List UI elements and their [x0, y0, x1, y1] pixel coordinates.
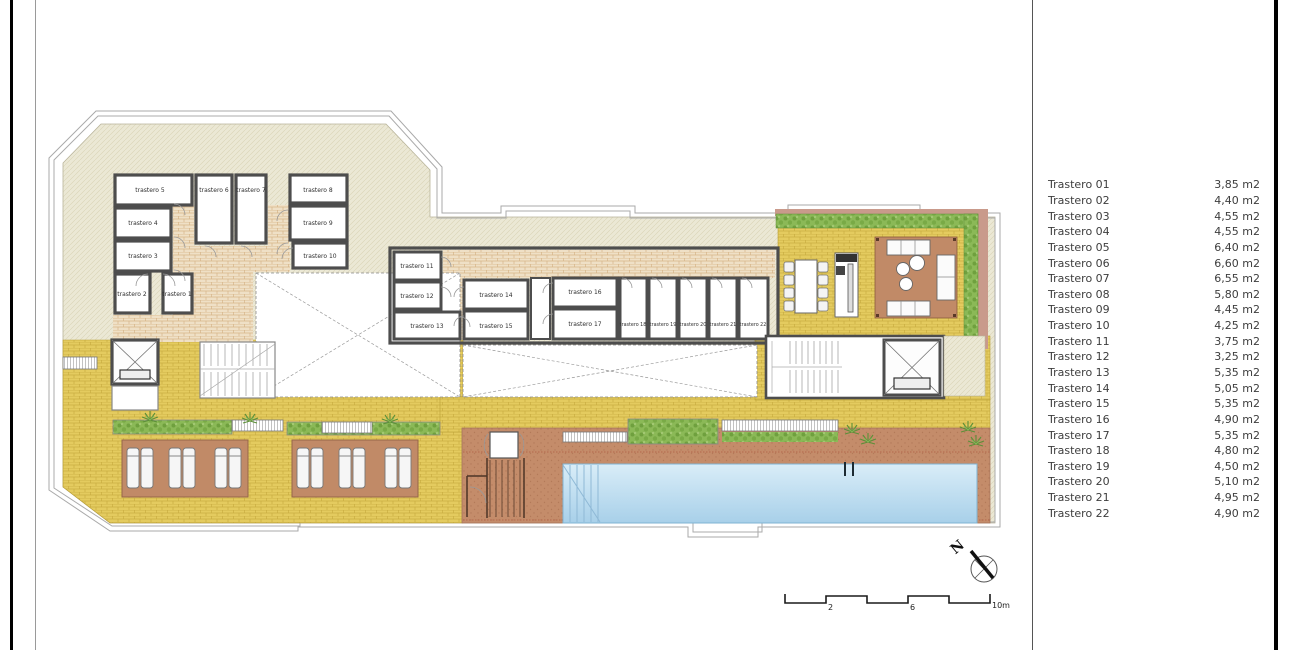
legend-row: Trastero 214,95 m2: [1048, 490, 1260, 506]
legend-room-name: Trastero 02: [1048, 194, 1110, 207]
sheet-border-left-thick: [10, 0, 13, 650]
storeroom-legend: Trastero 013,85 m2 Trastero 024,40 m2 Tr…: [1048, 177, 1260, 521]
room-label: trastero 11: [400, 263, 433, 270]
legend-room-name: Trastero 15: [1048, 397, 1110, 410]
terrace-planter: [113, 420, 232, 434]
legend-row: Trastero 024,40 m2: [1048, 193, 1260, 209]
room-label: trastero 2: [117, 291, 147, 298]
legend-room-name: Trastero 17: [1048, 429, 1110, 442]
legend-row: Trastero 066,60 m2: [1048, 255, 1260, 271]
legend-room-name: Trastero 16: [1048, 413, 1110, 426]
pool-planter: [628, 419, 718, 444]
legend-row: Trastero 113,75 m2: [1048, 333, 1260, 349]
legend-room-name: Trastero 13: [1048, 366, 1110, 379]
room-trastero-20: [679, 278, 707, 339]
north-arrow-icon: N: [948, 537, 997, 582]
elevator-right: [884, 340, 940, 395]
legend-row: Trastero 224,90 m2: [1048, 505, 1260, 521]
legend-row: Trastero 123,25 m2: [1048, 349, 1260, 365]
terrace-bench: [232, 420, 283, 431]
room-label: trastero 10: [303, 253, 336, 260]
legend-row: Trastero 044,55 m2: [1048, 224, 1260, 240]
legend-row: Trastero 184,80 m2: [1048, 443, 1260, 459]
sheet-border-right-thick: [1274, 0, 1278, 650]
room-label: trastero 5: [135, 187, 165, 194]
room-label: trastero 4: [128, 220, 158, 227]
legend-room-name: Trastero 09: [1048, 303, 1110, 316]
scale-tick-label: 6: [910, 603, 915, 612]
legend-room-name: Trastero 04: [1048, 225, 1110, 238]
legend-room-area: 3,25 m2: [1214, 350, 1260, 363]
legend-row: Trastero 056,40 m2: [1048, 240, 1260, 256]
legend-room-area: 4,45 m2: [1214, 303, 1260, 316]
legend-row: Trastero 205,10 m2: [1048, 474, 1260, 490]
coffee-table: [897, 263, 910, 276]
legend-room-area: 5,35 m2: [1214, 397, 1260, 410]
room-label: trastero 1: [162, 291, 192, 298]
legend-room-area: 4,55 m2: [1214, 225, 1260, 238]
wall-bench: [63, 357, 97, 369]
legend-room-area: 5,05 m2: [1214, 382, 1260, 395]
room-label: trastero 16: [568, 289, 601, 296]
legend-room-area: 4,90 m2: [1214, 507, 1260, 520]
scale-tick-label: 2: [828, 603, 833, 612]
legend-room-area: 5,10 m2: [1214, 475, 1260, 488]
legend-room-name: Trastero 11: [1048, 335, 1110, 348]
room-label: trastero 12: [400, 293, 433, 300]
pool-bench: [563, 432, 627, 442]
legend-row: Trastero 013,85 m2: [1048, 177, 1260, 193]
room-label: trastero 6: [199, 187, 229, 194]
room-trastero-21: [709, 278, 737, 339]
hedge-top: [776, 214, 978, 228]
legend-room-area: 4,25 m2: [1214, 319, 1260, 332]
legend-room-name: Trastero 18: [1048, 444, 1110, 457]
legend-row: Trastero 094,45 m2: [1048, 302, 1260, 318]
kitchen-counter: [835, 253, 858, 317]
roof-patch: [944, 336, 985, 396]
legend-room-area: 4,90 m2: [1214, 413, 1260, 426]
legend-room-name: Trastero 03: [1048, 210, 1110, 223]
sofa: [887, 301, 930, 316]
deck-shower-tray: [490, 432, 518, 458]
legend-room-name: Trastero 22: [1048, 507, 1110, 520]
stairs-left: [200, 342, 275, 398]
legend-room-name: Trastero 01: [1048, 178, 1110, 191]
room-label: trastero 22: [740, 322, 767, 328]
legend-row: Trastero 085,80 m2: [1048, 286, 1260, 302]
room-label: trastero 20: [680, 322, 707, 328]
sheet-border-left-thin: [35, 0, 36, 650]
legend-room-name: Trastero 19: [1048, 460, 1110, 473]
legend-room-area: 6,60 m2: [1214, 257, 1260, 270]
legend-row: Trastero 104,25 m2: [1048, 318, 1260, 334]
elevator-left: [112, 340, 158, 384]
vestibule: [531, 278, 550, 339]
scale-tick-label: 10m: [992, 601, 1010, 610]
planter-wall-right: [978, 209, 988, 349]
legend-room-name: Trastero 12: [1048, 350, 1110, 363]
garden-bench: [722, 420, 838, 431]
legend-row: Trastero 164,90 m2: [1048, 412, 1260, 428]
legend-room-name: Trastero 08: [1048, 288, 1110, 301]
coffee-table: [900, 278, 913, 291]
legend-room-name: Trastero 06: [1048, 257, 1110, 270]
room-label: trastero 3: [128, 253, 158, 260]
room-label: trastero 17: [568, 321, 601, 328]
room-label: trastero 15: [479, 323, 512, 330]
legend-row: Trastero 076,55 m2: [1048, 271, 1260, 287]
room-trastero-22: [739, 278, 768, 339]
legend-row: Trastero 194,50 m2: [1048, 459, 1260, 475]
sofa: [887, 240, 930, 255]
north-label: N: [948, 537, 968, 558]
legend-room-area: 4,50 m2: [1214, 460, 1260, 473]
room-label: trastero 13: [410, 323, 443, 330]
swimming-pool: [563, 464, 977, 523]
room-label: trastero 21: [710, 322, 737, 328]
legend-row: Trastero 135,35 m2: [1048, 365, 1260, 381]
legend-separator: [1032, 0, 1033, 650]
room-trastero-7: [236, 175, 266, 243]
room-label: trastero 18: [620, 322, 647, 328]
room-trastero-6: [196, 175, 232, 243]
room-label: trastero 9: [303, 220, 333, 227]
hedge-right: [964, 214, 978, 346]
stair-elevator-block: [766, 336, 944, 398]
legend-row: Trastero 155,35 m2: [1048, 396, 1260, 412]
floorplan-sheet: trastero 1 trastero 2 trastero 3 traster…: [0, 0, 1291, 650]
legend-room-area: 5,80 m2: [1214, 288, 1260, 301]
legend-room-area: 6,55 m2: [1214, 272, 1260, 285]
room-label: trastero 14: [479, 292, 512, 299]
room-label: trastero 19: [650, 322, 677, 328]
legend-room-area: 5,35 m2: [1214, 366, 1260, 379]
scale-bar: 2 6 10m: [785, 594, 1010, 612]
legend-room-area: 6,40 m2: [1214, 241, 1260, 254]
sofa: [937, 255, 955, 300]
room-label: trastero 7: [236, 187, 266, 194]
legend-room-name: Trastero 20: [1048, 475, 1110, 488]
legend-room-name: Trastero 07: [1048, 272, 1110, 285]
legend-row: Trastero 145,05 m2: [1048, 380, 1260, 396]
legend-room-name: Trastero 10: [1048, 319, 1110, 332]
dining-table: [795, 260, 817, 313]
elevator-lobby: [112, 386, 158, 410]
legend-room-area: 3,85 m2: [1214, 178, 1260, 191]
room-trastero-19: [649, 278, 677, 339]
legend-room-name: Trastero 21: [1048, 491, 1110, 504]
legend-room-area: 4,80 m2: [1214, 444, 1260, 457]
terrace-bench: [322, 422, 372, 433]
legend-room-area: 3,75 m2: [1214, 335, 1260, 348]
legend-room-name: Trastero 05: [1048, 241, 1110, 254]
room-label: trastero 8: [303, 187, 333, 194]
garden-hedge-strip: [722, 432, 838, 442]
coffee-table: [910, 256, 925, 271]
legend-row: Trastero 034,55 m2: [1048, 208, 1260, 224]
legend-room-area: 4,55 m2: [1214, 210, 1260, 223]
legend-row: Trastero 175,35 m2: [1048, 427, 1260, 443]
room-trastero-18: [620, 278, 647, 339]
legend-room-name: Trastero 14: [1048, 382, 1110, 395]
legend-room-area: 4,40 m2: [1214, 194, 1260, 207]
legend-room-area: 5,35 m2: [1214, 429, 1260, 442]
lounge-set: [875, 237, 957, 318]
legend-room-area: 4,95 m2: [1214, 491, 1260, 504]
